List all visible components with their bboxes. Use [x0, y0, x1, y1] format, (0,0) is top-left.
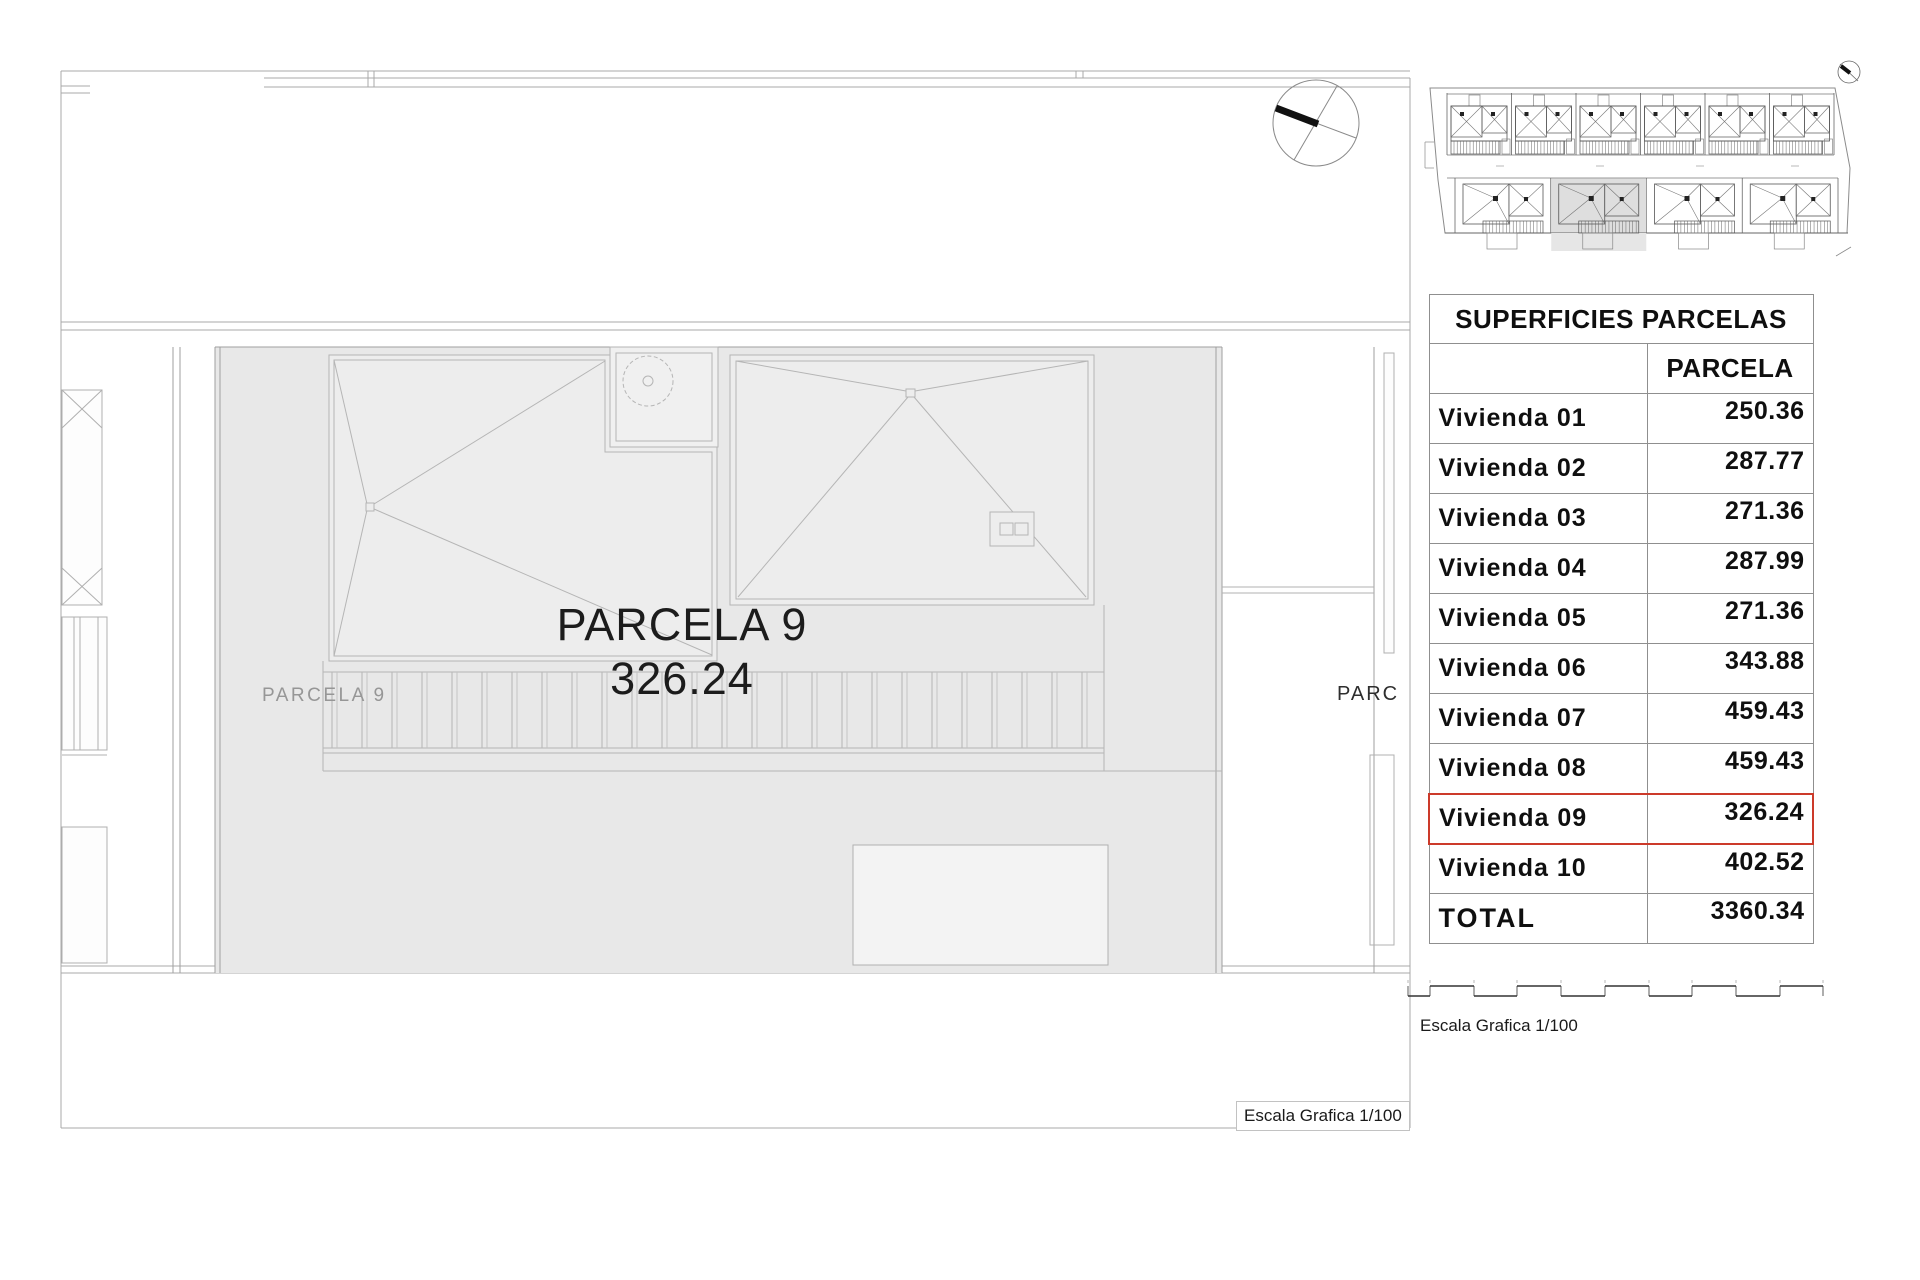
skylight: [990, 512, 1034, 546]
table-row: Vivienda 05271.36: [1429, 594, 1813, 644]
parcel-name-cell: Vivienda 09: [1429, 794, 1647, 844]
parcel-area-cell: 3360.34: [1647, 894, 1813, 944]
parcel-name-cell: Vivienda 03: [1429, 494, 1647, 544]
parcel-name-cell: Vivienda 01: [1429, 394, 1647, 444]
table-row: Vivienda 04287.99: [1429, 544, 1813, 594]
right-roof: [730, 355, 1094, 605]
table-row: Vivienda 02287.77: [1429, 444, 1813, 494]
parcel-name-cell: Vivienda 10: [1429, 844, 1647, 894]
table-title: SUPERFICIES PARCELAS: [1429, 295, 1813, 344]
parcel-name-cell: Vivienda 05: [1429, 594, 1647, 644]
parcel-area-cell: 459.43: [1647, 694, 1813, 744]
main-scale-caption: Escala Grafica 1/100: [1244, 1106, 1402, 1125]
table-row: Vivienda 10402.52: [1429, 844, 1813, 894]
parcel-area-value: 326.24: [432, 652, 932, 706]
parcel-area-cell: 459.43: [1647, 744, 1813, 794]
parcel-area-cell: 250.36: [1647, 394, 1813, 444]
table-row: Vivienda 08459.43: [1429, 744, 1813, 794]
parcel-area-cell: 271.36: [1647, 594, 1813, 644]
left-neighbor-structures: [62, 390, 107, 963]
parcel-name-cell: Vivienda 07: [1429, 694, 1647, 744]
table-row: Vivienda 03271.36: [1429, 494, 1813, 544]
parcel-name-cell: TOTAL: [1429, 894, 1647, 944]
blank-header-cell: [1429, 344, 1647, 394]
table-row: Vivienda 09326.24: [1429, 794, 1813, 844]
table-title-row: SUPERFICIES PARCELAS: [1429, 295, 1813, 344]
table-row: Vivienda 06343.88: [1429, 644, 1813, 694]
superficies-table: SUPERFICIES PARCELAS PARCELA Vivienda 01…: [1428, 294, 1814, 944]
parcel-area-cell: 287.77: [1647, 444, 1813, 494]
pool: [853, 845, 1108, 965]
parcela-column-header: PARCELA: [1647, 344, 1813, 394]
parcel-label-group: PARCELA 9 326.24: [432, 598, 932, 706]
parcel-name-cell: Vivienda 04: [1429, 544, 1647, 594]
neighbor-parcel-label: PARC: [1337, 683, 1399, 706]
sidebar-scale-caption: Escala Grafica 1/100: [1420, 1016, 1578, 1036]
patio-square: [610, 347, 718, 447]
right-neighbor-structures: [1222, 353, 1394, 945]
table-row: Vivienda 01250.36: [1429, 394, 1813, 444]
parcel-area-cell: 287.99: [1647, 544, 1813, 594]
parcel-name-cell: Vivienda 08: [1429, 744, 1647, 794]
compass-icon: [1273, 80, 1359, 166]
table-row: TOTAL3360.34: [1429, 894, 1813, 944]
table-row: Vivienda 07459.43: [1429, 694, 1813, 744]
main-scale-caption-box: Escala Grafica 1/100: [1236, 1101, 1410, 1131]
table-subheader-row: PARCELA: [1429, 344, 1813, 394]
parcel-ground-label: PARCELA 9: [262, 685, 387, 707]
parcel-name-cell: Vivienda 06: [1429, 644, 1647, 694]
parcel-area-cell: 402.52: [1647, 844, 1813, 894]
parcel-title: PARCELA 9: [432, 598, 932, 652]
graphic-scale-bar: [1408, 980, 1823, 996]
parcel-name-cell: Vivienda 02: [1429, 444, 1647, 494]
parcel-area-cell: 271.36: [1647, 494, 1813, 544]
parcel-area-cell: 343.88: [1647, 644, 1813, 694]
parcel-area-cell: 326.24: [1647, 794, 1813, 844]
site-overview-minimap: [1425, 61, 1860, 256]
